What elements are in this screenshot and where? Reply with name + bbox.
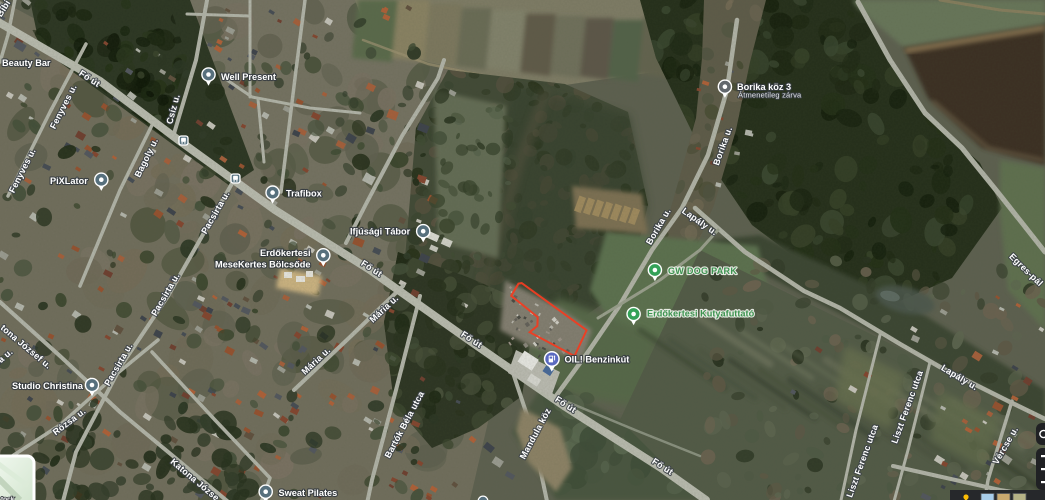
svg-text:tock: tock bbox=[1, 496, 15, 500]
svg-text:Trafibox: Trafibox bbox=[286, 189, 323, 199]
svg-text:Sweat Pilates: Sweat Pilates bbox=[279, 488, 338, 498]
svg-text:OIL! Benzinkút: OIL! Benzinkút bbox=[565, 355, 630, 365]
svg-text:Erdőkertesi: Erdőkertesi bbox=[260, 248, 311, 258]
svg-text:Beauty Bar: Beauty Bar bbox=[2, 58, 51, 68]
svg-text:Well Present: Well Present bbox=[221, 72, 276, 82]
svg-text:Studio Christina: Studio Christina bbox=[12, 381, 84, 391]
svg-text:MeseKertes Bölcsőde: MeseKertes Bölcsőde bbox=[215, 260, 311, 270]
svg-text:Átmenetileg zárva: Átmenetileg zárva bbox=[738, 91, 802, 100]
svg-text:Erdőkertesi Kutyafuttató: Erdőkertesi Kutyafuttató bbox=[647, 309, 755, 319]
svg-text:Ifjúsági Tábor: Ifjúsági Tábor bbox=[350, 227, 411, 237]
svg-text:PiXLator: PiXLator bbox=[50, 176, 88, 186]
svg-text:GW DOG PARK: GW DOG PARK bbox=[668, 266, 737, 276]
